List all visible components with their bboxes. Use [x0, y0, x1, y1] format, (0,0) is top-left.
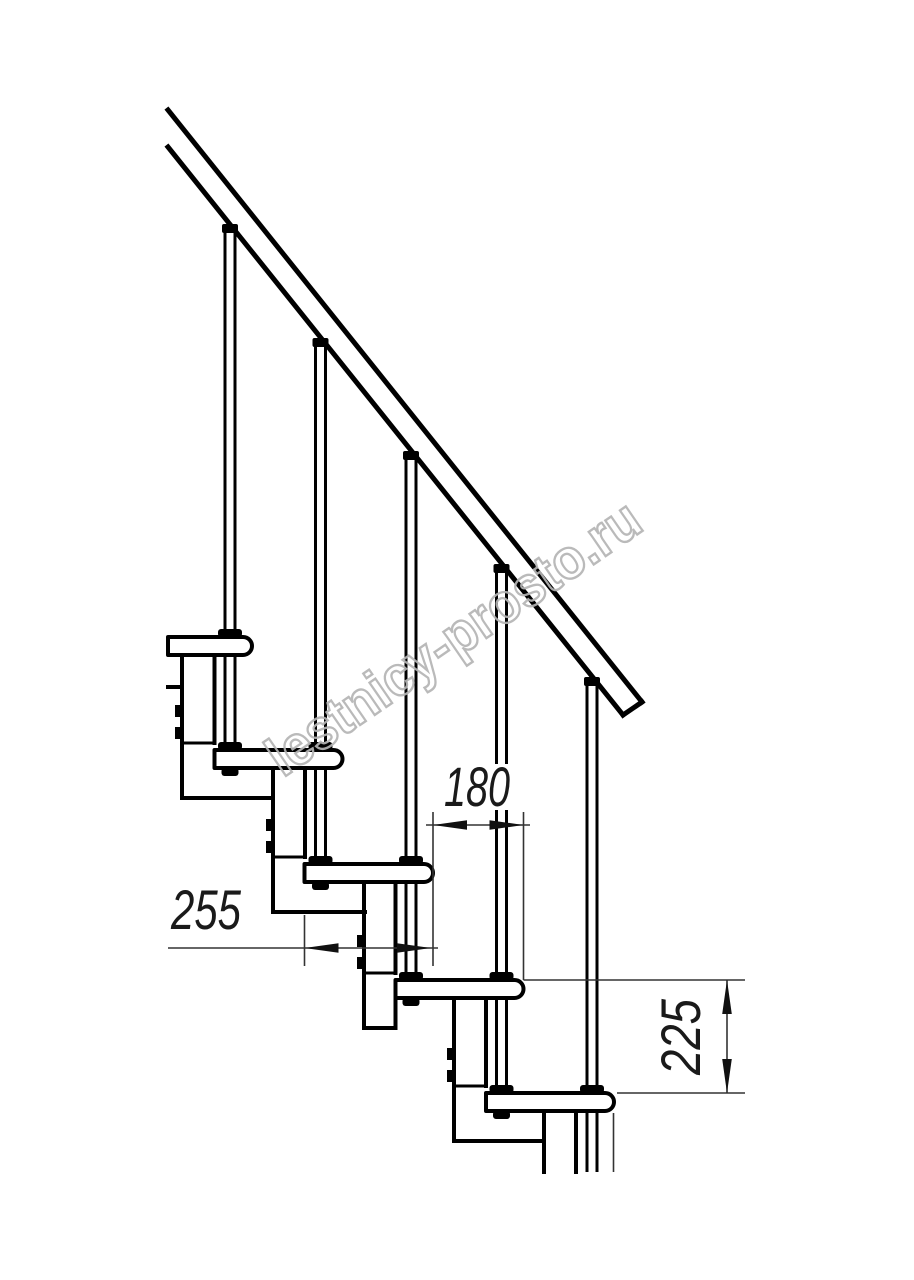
- nut: [403, 998, 420, 1006]
- nut: [312, 882, 329, 890]
- collar: [580, 1085, 604, 1093]
- dimension-step-rise: 225: [524, 980, 746, 1093]
- dimension-180-label: 180: [444, 755, 510, 818]
- collar: [218, 629, 242, 637]
- baluster-2: [313, 338, 329, 744]
- arrow-down-icon: [722, 1059, 732, 1093]
- arrow-up-icon: [722, 980, 732, 1014]
- module-bolt: [266, 819, 273, 831]
- handrail-end-cut: [623, 702, 642, 715]
- arrow-right-icon: [397, 943, 431, 953]
- baluster-3-lower: [406, 882, 416, 974]
- baluster-1: [222, 224, 238, 631]
- collar: [218, 742, 242, 750]
- module-bolt: [447, 1048, 454, 1060]
- collar: [490, 1085, 514, 1093]
- tread-3: [305, 864, 434, 882]
- dimension-225-label: 225: [649, 998, 712, 1076]
- tread-1: [168, 637, 252, 655]
- module-bolt: [357, 957, 364, 969]
- module-bolt: [447, 1070, 454, 1082]
- dimension-255-label: 255: [170, 878, 241, 941]
- tread-5: [486, 1093, 614, 1111]
- baluster-4-lower: [497, 998, 507, 1087]
- baluster-1-lower: [225, 655, 235, 744]
- support-module-5-cut: [544, 1111, 614, 1172]
- collar: [309, 856, 333, 864]
- staircase-technical-drawing: 180 255 225 lestnicy-prosto.ru: [0, 0, 914, 1280]
- module-bolt: [175, 727, 182, 739]
- support-module-3: [357, 882, 396, 1028]
- collar: [399, 856, 423, 864]
- baluster-2-lower: [316, 768, 326, 858]
- arrow-left-icon: [433, 820, 467, 830]
- baluster-5: [584, 677, 600, 1087]
- dimension-step-run: 180: [426, 755, 530, 980]
- module-bolt: [175, 705, 182, 717]
- module-bolt: [357, 935, 364, 947]
- collar: [490, 972, 514, 980]
- nut: [222, 768, 239, 776]
- module-bolt: [266, 841, 273, 853]
- collar: [399, 972, 423, 980]
- arrow-left-icon: [305, 943, 339, 953]
- nut: [493, 1111, 510, 1119]
- baluster-5-lower: [587, 1111, 597, 1172]
- tread-4: [396, 980, 524, 998]
